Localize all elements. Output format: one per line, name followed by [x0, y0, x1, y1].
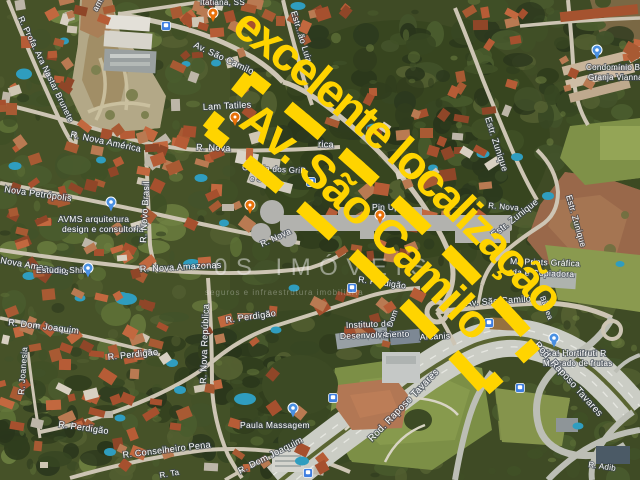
- svg-text:Paula Massagem: Paula Massagem: [240, 420, 310, 430]
- svg-text:R. Nova: R. Nova: [196, 142, 231, 153]
- svg-text:design e consultoria: design e consultoria: [62, 224, 144, 234]
- svg-text:Condomínio Br: Condomínio Br: [586, 63, 640, 72]
- svg-text:Itatiana, SS: Itatiana, SS: [200, 0, 245, 7]
- svg-text:Estudio Shift: Estudio Shift: [36, 265, 88, 275]
- svg-text:Granja Vianna: Granja Vianna: [588, 73, 640, 82]
- svg-text:AVMS arquitetura: AVMS arquitetura: [58, 214, 129, 224]
- svg-text:seguros e infraestrutura imobi: seguros e infraestrutura imobiliaria: [205, 288, 364, 297]
